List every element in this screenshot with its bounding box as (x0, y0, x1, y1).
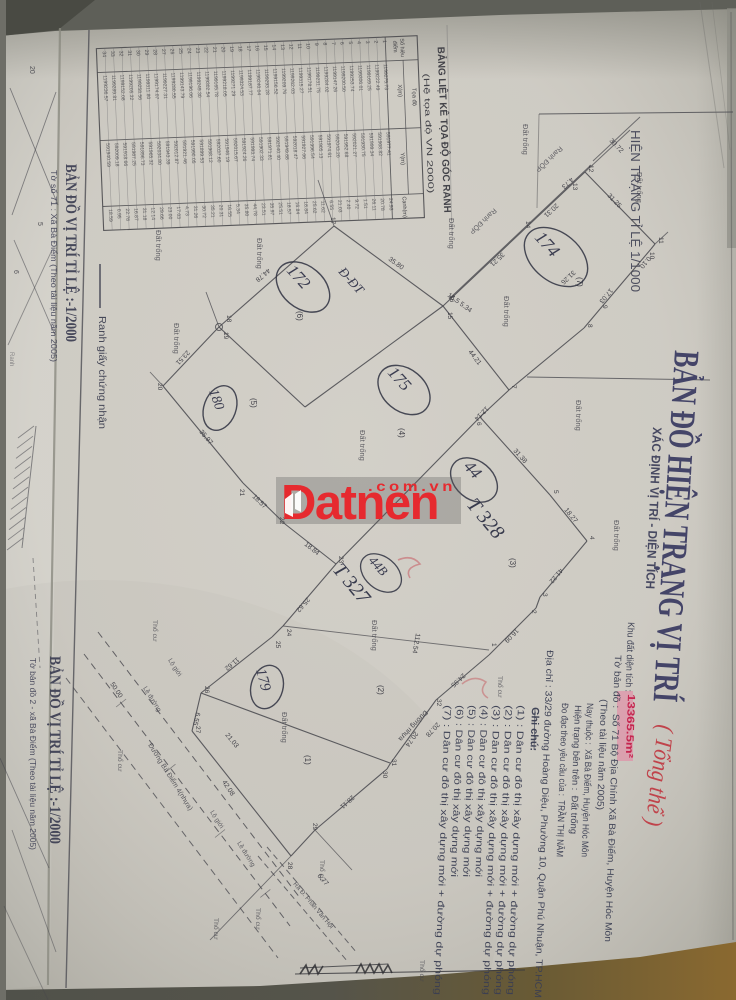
svg-text:591946.19: 591946.19 (223, 138, 230, 162)
svg-text:591918.66: 591918.66 (121, 142, 128, 166)
svg-text:19: 19 (222, 332, 229, 340)
svg-text:5.34: 5.34 (234, 204, 240, 214)
svg-text:1199284.02: 1199284.02 (322, 66, 329, 92)
svg-text:1199169.25: 1199169.25 (365, 65, 372, 91)
svg-text:Cạnh(m): Cạnh(m) (401, 196, 408, 218)
svg-text:30: 30 (135, 50, 141, 56)
svg-text:1199218.05: 1199218.05 (220, 70, 227, 96)
svg-text:1199147.26: 1199147.26 (331, 66, 338, 92)
svg-text:3: 3 (541, 593, 548, 597)
svg-text:1199156.52: 1199156.52 (271, 68, 278, 94)
svg-text:1199231.75: 1199231.75 (314, 67, 321, 93)
svg-text:1199152.08: 1199152.08 (119, 75, 126, 101)
svg-text:591968.12: 591968.12 (206, 139, 213, 163)
svg-text:591905.13: 591905.13 (317, 135, 324, 159)
svg-text:35.97: 35.97 (268, 203, 275, 216)
svg-text:29: 29 (311, 823, 318, 831)
svg-text:24: 24 (285, 629, 292, 637)
svg-text:34: 34 (101, 51, 107, 57)
svg-text:(6): (6) (295, 311, 304, 321)
svg-text:25: 25 (274, 641, 281, 649)
svg-text:1199275.73: 1199275.73 (382, 64, 389, 90)
svg-text:11: 11 (296, 43, 302, 49)
svg-text:21: 21 (238, 489, 245, 497)
svg-text:29.66: 29.66 (158, 207, 165, 220)
svg-text:BẢN ĐỒ VỊ TRÍ TỈ LỆ :-1/2000: BẢN ĐỒ VỊ TRÍ TỈ LỆ :-1/2000 (62, 164, 80, 342)
svg-text:591999.34: 591999.34 (368, 133, 375, 157)
svg-text:591940.59: 591940.59 (104, 143, 111, 167)
svg-text:8: 8 (586, 324, 593, 328)
svg-text:16.84: 16.84 (294, 202, 301, 215)
svg-text:1199227.31: 1199227.31 (161, 73, 168, 99)
svg-text:Đất trống: Đất trống (502, 296, 511, 327)
svg-text:16.55: 16.55 (226, 204, 233, 217)
svg-text:18.84: 18.84 (302, 201, 309, 214)
svg-text:591949.88: 591949.88 (283, 136, 290, 160)
svg-text:591977.41: 591977.41 (385, 132, 392, 156)
svg-text:1199253.74: 1199253.74 (348, 65, 355, 91)
svg-text:Đất trống: Đất trống (521, 124, 530, 155)
svg-text:592021.27: 592021.27 (351, 133, 358, 157)
svg-text:592015.67: 592015.67 (232, 138, 239, 162)
svg-text:21.03: 21.03 (336, 200, 343, 213)
svg-text:29: 29 (143, 50, 149, 56)
svg-text:591921.46: 591921.46 (181, 140, 188, 164)
svg-text:27: 27 (194, 726, 201, 734)
svg-text:Đất trống: Đất trống (447, 218, 456, 249)
svg-text:4: 4 (355, 41, 361, 44)
svg-text:Ranh: Ranh (8, 352, 14, 366)
svg-text:X(m): X(m) (396, 84, 403, 97)
svg-text:20.78: 20.78 (379, 198, 386, 211)
svg-text:20.31: 20.31 (217, 205, 224, 218)
svg-text:17.03: 17.03 (175, 206, 182, 219)
svg-text:Thổ cư: Thổ cư (212, 918, 220, 940)
svg-text:1199289.81: 1199289.81 (110, 75, 117, 101)
svg-text:26.11: 26.11 (370, 199, 376, 212)
svg-text:1199143.79: 1199143.79 (178, 72, 185, 98)
svg-text:1199262.03: 1199262.03 (288, 68, 295, 94)
svg-text:Tọa độ: Tọa độ (410, 88, 417, 106)
svg-text:1199178.51: 1199178.51 (305, 67, 312, 93)
svg-text:13: 13 (571, 183, 578, 191)
svg-text:1199200.50: 1199200.50 (339, 66, 346, 92)
svg-text:591952.68: 591952.68 (342, 134, 349, 158)
svg-text:10: 10 (304, 43, 310, 49)
svg-text:592012.87: 592012.87 (172, 140, 179, 164)
svg-text:21: 21 (211, 47, 217, 53)
svg-text:591993.74: 591993.74 (249, 137, 256, 161)
svg-text:Đất trống: Đất trống (370, 620, 379, 651)
svg-text:25: 25 (177, 48, 183, 54)
svg-text:18.57: 18.57 (285, 202, 292, 215)
svg-text:32: 32 (118, 51, 124, 57)
svg-text:BẢN ĐỒ VỊ TRÍ TỈ LỆ :-1/2000: BẢN ĐỒ VỊ TRÍ TỈ LỆ :-1/2000 (46, 656, 66, 844)
svg-text:1: 1 (381, 40, 387, 43)
svg-text:16: 16 (448, 295, 455, 303)
svg-text:592037.60: 592037.60 (215, 139, 222, 163)
svg-text:10: 10 (648, 252, 655, 260)
svg-text:23.00: 23.00 (166, 207, 173, 220)
svg-text:1199311.80: 1199311.80 (144, 73, 151, 99)
svg-text:Thổ cư: Thổ cư (151, 620, 159, 642)
svg-text:1199271.29: 1199271.29 (229, 70, 236, 96)
svg-text:9: 9 (601, 305, 608, 309)
svg-text:Thổ cư: Thổ cư (418, 960, 426, 982)
svg-text:7: 7 (510, 385, 517, 389)
svg-text:4: 4 (588, 536, 595, 540)
svg-text:(2): (2) (376, 685, 385, 695)
svg-text:20: 20 (156, 383, 163, 391)
svg-text:14: 14 (270, 44, 276, 50)
svg-text:16.87: 16.87 (132, 208, 139, 221)
svg-text:Thổ cư: Thổ cư (496, 676, 504, 698)
svg-text:591924.26: 591924.26 (240, 138, 247, 162)
svg-text:591943.39: 591943.39 (164, 141, 171, 165)
svg-text:13365.5m²: 13365.5m² (623, 694, 637, 759)
svg-text:6.55: 6.55 (328, 200, 334, 210)
svg-text:30: 30 (381, 771, 388, 779)
svg-text:592018.47: 592018.47 (291, 136, 298, 160)
svg-text:Thổ cư: Thổ cư (318, 860, 326, 882)
svg-text:1199280.55: 1199280.55 (169, 72, 176, 98)
svg-text:592043.20: 592043.20 (334, 134, 341, 158)
svg-text:1199306.01: 1199306.01 (356, 65, 363, 91)
svg-text:(3): (3) (508, 558, 517, 568)
svg-text:Đất trống: Đất trống (612, 520, 621, 551)
svg-text:25.51: 25.51 (277, 202, 284, 215)
svg-text:1199209.76: 1199209.76 (280, 68, 287, 94)
svg-text:591930.75: 591930.75 (359, 133, 366, 157)
svg-text:Đất trống: Đất trống (154, 230, 163, 261)
svg-text:8: 8 (321, 42, 327, 45)
svg-text:592009.18: 592009.18 (113, 143, 120, 167)
svg-text:2.40: 2.40 (345, 200, 351, 210)
svg-text:12: 12 (287, 44, 293, 50)
svg-text:1199222.49: 1199222.49 (373, 64, 380, 90)
svg-text:31.18: 31.18 (141, 208, 148, 221)
svg-text:19: 19 (228, 46, 234, 52)
svg-text:23.51: 23.51 (260, 203, 267, 216)
svg-text:6: 6 (12, 270, 19, 274)
svg-text:31: 31 (126, 50, 132, 56)
svg-text:5: 5 (552, 490, 559, 494)
svg-text:1199302.54: 1199302.54 (203, 71, 210, 97)
svg-text:35.80: 35.80 (243, 204, 250, 217)
svg-text:1199249.30: 1199249.30 (195, 71, 202, 97)
svg-text:1199205.32: 1199205.32 (127, 74, 134, 100)
svg-text:7: 7 (330, 42, 336, 45)
svg-text:Đất trống: Đất trống (172, 323, 181, 354)
svg-text:1199240.04: 1199240.04 (254, 69, 261, 95)
svg-text:1199165.78: 1199165.78 (212, 71, 219, 97)
svg-text:18: 18 (236, 46, 242, 52)
svg-text:1199196.06: 1199196.06 (186, 72, 193, 98)
svg-text:28: 28 (152, 49, 158, 55)
svg-text:591896.73: 591896.73 (138, 142, 145, 166)
svg-text:23: 23 (194, 47, 200, 53)
svg-text:11.62: 11.62 (319, 201, 325, 214)
svg-text:15: 15 (262, 45, 268, 51)
svg-text:2: 2 (372, 40, 378, 43)
svg-text:1199293.28: 1199293.28 (263, 69, 270, 95)
svg-text:12: 12 (587, 165, 594, 173)
svg-text:1199187.77: 1199187.77 (246, 69, 253, 95)
svg-text:.com.vn: .com.vn (368, 478, 456, 494)
svg-text:Tờ số 71 : Xã Bà Điểm (Theo tà: Tờ số 71 : Xã Bà Điểm (Theo tài liệu năm… (49, 170, 59, 362)
svg-text:11: 11 (657, 237, 664, 244)
svg-text:điểm: điểm (391, 40, 398, 53)
svg-text:20: 20 (219, 46, 225, 52)
svg-text:Ranh giấy chứng nhận: Ranh giấy chứng nhận (96, 316, 108, 429)
svg-text:16: 16 (253, 45, 259, 51)
svg-text:25.62: 25.62 (311, 201, 318, 214)
svg-text:1199324.53: 1199324.53 (237, 70, 244, 96)
svg-text:6: 6 (475, 422, 482, 426)
svg-text:26: 26 (203, 686, 210, 694)
svg-text:18.59: 18.59 (107, 209, 114, 222)
svg-text:3: 3 (364, 41, 370, 44)
svg-text:12.14: 12.14 (149, 207, 156, 220)
svg-text:591990.05: 591990.05 (189, 140, 196, 164)
svg-text:0.95: 0.95 (115, 209, 121, 219)
svg-text:1199258.56: 1199258.56 (136, 74, 143, 100)
svg-text:24: 24 (186, 48, 192, 54)
svg-text:591908.82: 591908.82 (376, 132, 383, 156)
svg-text:6: 6 (338, 42, 344, 45)
svg-text:1199315.27: 1199315.27 (297, 67, 304, 93)
svg-text:591965.32: 591965.32 (147, 141, 154, 165)
svg-text:22.78: 22.78 (124, 208, 131, 221)
svg-text:32: 32 (435, 699, 442, 707)
svg-text:9.72: 9.72 (353, 199, 359, 209)
svg-text:31: 31 (390, 759, 397, 767)
svg-text:2: 2 (530, 610, 537, 614)
svg-text:591974.61: 591974.61 (325, 134, 332, 158)
svg-text:35.21: 35.21 (209, 205, 216, 218)
svg-text:44.78: 44.78 (251, 203, 258, 216)
svg-text:20: 20 (28, 66, 35, 74)
svg-text:591987.25: 591987.25 (130, 142, 137, 166)
svg-text:591899.53: 591899.53 (198, 139, 205, 163)
svg-text:30.72: 30.72 (200, 205, 207, 218)
svg-text:Đất trống: Đất trống (635, 172, 644, 203)
svg-text:(1): (1) (303, 755, 312, 765)
svg-text:591927.06: 591927.06 (300, 135, 307, 159)
svg-text:24.93: 24.93 (387, 198, 394, 211)
svg-text:26: 26 (169, 48, 175, 54)
svg-text:592040.40: 592040.40 (274, 136, 281, 160)
svg-text:Đất trống: Đất trống (255, 238, 264, 269)
svg-text:1.51: 1.51 (362, 199, 368, 209)
svg-text:33: 33 (109, 51, 115, 57)
svg-text:4.73: 4.73 (183, 206, 189, 216)
svg-text:Đất trống: Đất trống (280, 712, 289, 743)
svg-text:9: 9 (313, 43, 319, 46)
svg-text:Đất trống: Đất trống (358, 430, 367, 461)
svg-text:Thổ cư: Thổ cư (254, 908, 262, 930)
svg-text:(4): (4) (397, 428, 406, 438)
svg-text:18: 18 (225, 315, 232, 323)
svg-text:591902.33: 591902.33 (257, 137, 264, 161)
svg-text:Thổ cư: Thổ cư (116, 750, 124, 772)
svg-text:5: 5 (347, 41, 353, 44)
svg-text:Số hiệu: Số hiệu (398, 38, 405, 57)
svg-text:591971.81: 591971.81 (266, 137, 273, 161)
svg-text:15: 15 (446, 312, 453, 320)
svg-text:Tờ bản đồ 2 - xã Bà Điểm (Theo: Tờ bản đồ 2 - xã Bà Điểm (Theo tài liệu … (28, 658, 38, 850)
svg-text:Y(m): Y(m) (399, 152, 406, 165)
svg-text:1199236.57: 1199236.57 (102, 75, 109, 101)
svg-text:31.26: 31.26 (192, 206, 199, 219)
svg-text:Đất trống: Đất trống (574, 400, 583, 431)
svg-text:17: 17 (245, 45, 251, 51)
svg-text:1: 1 (490, 643, 497, 647)
svg-text:17: 17 (329, 217, 336, 225)
svg-text:22: 22 (202, 47, 208, 53)
svg-text:1199174.07: 1199174.07 (152, 73, 159, 99)
svg-text:28: 28 (286, 862, 293, 870)
svg-text:(5): (5) (249, 398, 258, 408)
svg-text:591996.54: 591996.54 (308, 135, 315, 159)
svg-text:14: 14 (524, 221, 531, 229)
svg-text:13: 13 (279, 44, 285, 50)
svg-text:5: 5 (36, 222, 43, 226)
svg-text:27: 27 (160, 49, 166, 55)
svg-text:592034.80: 592034.80 (155, 141, 162, 165)
